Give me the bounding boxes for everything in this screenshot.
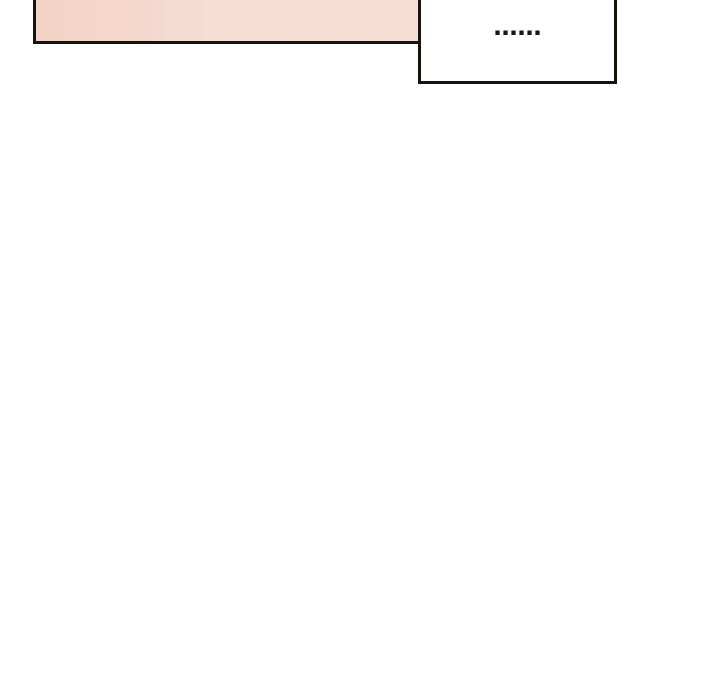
speech-bubble: ……	[418, 0, 617, 84]
comic-panel	[33, 0, 424, 44]
comic-page: ……	[0, 0, 720, 700]
speech-bubble-text: ……	[494, 15, 542, 39]
